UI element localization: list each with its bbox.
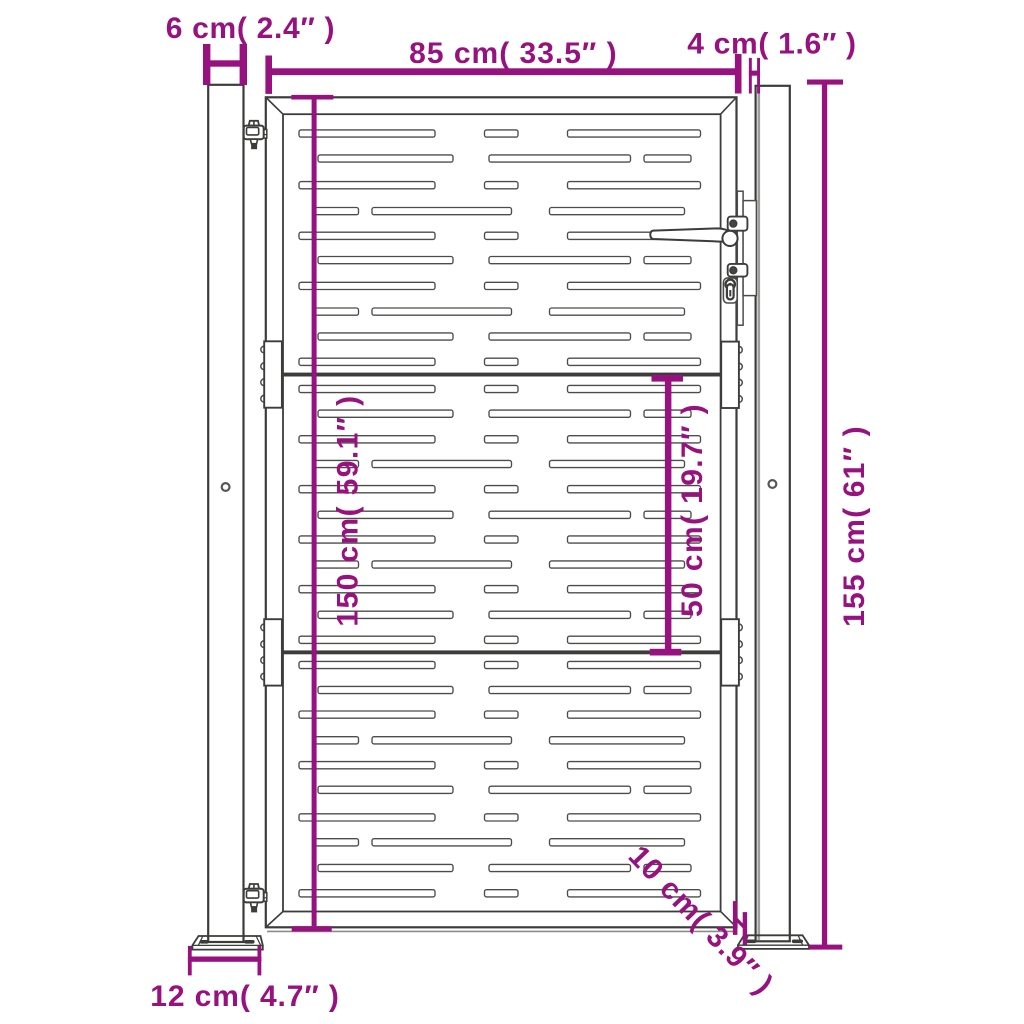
- svg-text:155 cm( 61″ ): 155 cm( 61″ ): [838, 425, 871, 627]
- svg-text:12 cm( 4.7″ ): 12 cm( 4.7″ ): [150, 980, 340, 1013]
- svg-text:150 cm( 59.1″ ): 150 cm( 59.1″ ): [332, 394, 365, 626]
- svg-text:6 cm( 2.4″ ): 6 cm( 2.4″ ): [166, 12, 336, 45]
- svg-text:85 cm( 33.5″ ): 85 cm( 33.5″ ): [409, 37, 617, 70]
- svg-text:4 cm( 1.6″ ): 4 cm( 1.6″ ): [687, 28, 857, 61]
- svg-text:50 cm( 19.7″ ): 50 cm( 19.7″ ): [676, 403, 709, 617]
